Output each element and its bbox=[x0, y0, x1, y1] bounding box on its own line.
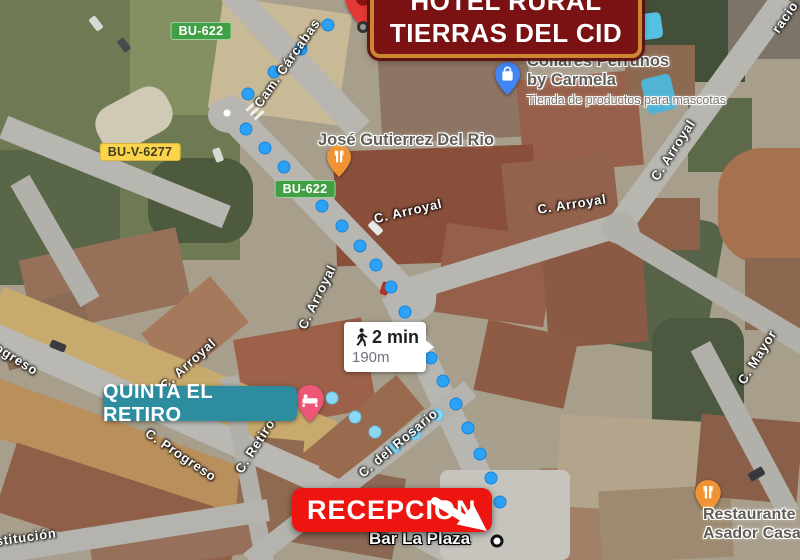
map-pins bbox=[0, 0, 800, 560]
route-box-pointer bbox=[424, 339, 434, 355]
hotel-pin-anchor bbox=[357, 21, 369, 33]
route-distance: 190m bbox=[352, 349, 390, 366]
hotel-banner-line2: TIERRAS DEL CID bbox=[378, 17, 634, 49]
poi-label-restaurante[interactable]: Restaurante Asador Casa C bbox=[703, 505, 800, 543]
poi-sub-collares: Tienda de productos para mascotas bbox=[527, 91, 726, 110]
route-info-box[interactable]: 2 min 190m bbox=[344, 322, 426, 372]
destination-dot bbox=[491, 535, 504, 548]
satellite-map[interactable]: Cam. CárcabasC. ArroyalC. ArroyalC. Arro… bbox=[0, 0, 800, 560]
quinta-pin[interactable] bbox=[296, 385, 324, 422]
walking-person-icon bbox=[353, 328, 369, 347]
hotel-banner-line1: HOTEL RURAL bbox=[378, 0, 634, 17]
recepcion-arrow-icon bbox=[428, 492, 492, 540]
collares-pin[interactable] bbox=[495, 62, 520, 95]
route-duration: 2 min bbox=[372, 327, 419, 348]
hotel-banner: HOTEL RURAL TIERRAS DEL CID bbox=[370, 0, 642, 58]
quinta-el-retiro-banner: QUINTA EL RETIRO bbox=[103, 386, 297, 421]
poi-label-jose[interactable]: José Gutierrez Del Rio bbox=[318, 131, 494, 150]
